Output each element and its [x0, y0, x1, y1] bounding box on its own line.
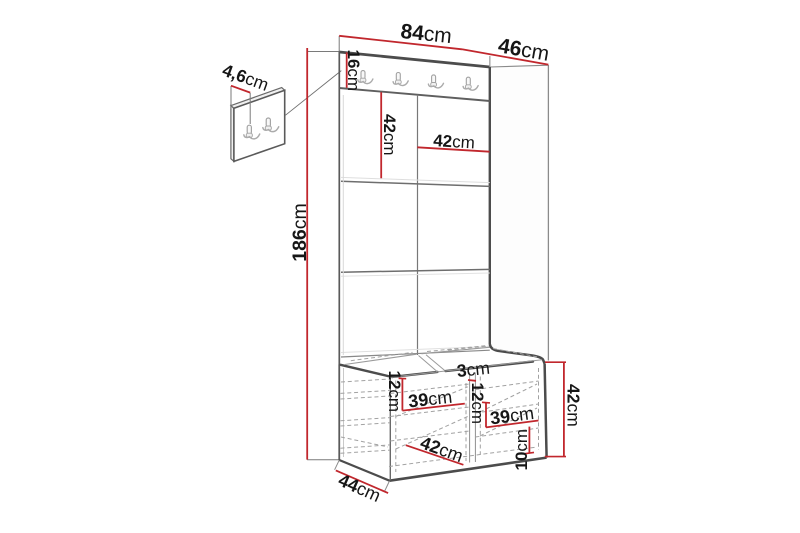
svg-text:3cm: 3cm: [456, 358, 491, 381]
svg-text:42cm: 42cm: [380, 114, 399, 156]
svg-text:42cm: 42cm: [433, 131, 476, 153]
svg-text:4,6cm: 4,6cm: [220, 60, 272, 95]
svg-text:186cm: 186cm: [289, 203, 311, 262]
svg-text:39cm: 39cm: [489, 403, 535, 429]
svg-text:16cm: 16cm: [344, 50, 363, 92]
svg-text:46cm: 46cm: [496, 34, 551, 66]
svg-text:42cm: 42cm: [418, 432, 466, 466]
svg-text:39cm: 39cm: [407, 387, 453, 412]
svg-text:12cm: 12cm: [468, 383, 487, 425]
svg-text:42cm: 42cm: [564, 384, 584, 427]
svg-text:12cm: 12cm: [385, 371, 404, 413]
svg-text:10cm: 10cm: [512, 429, 531, 471]
